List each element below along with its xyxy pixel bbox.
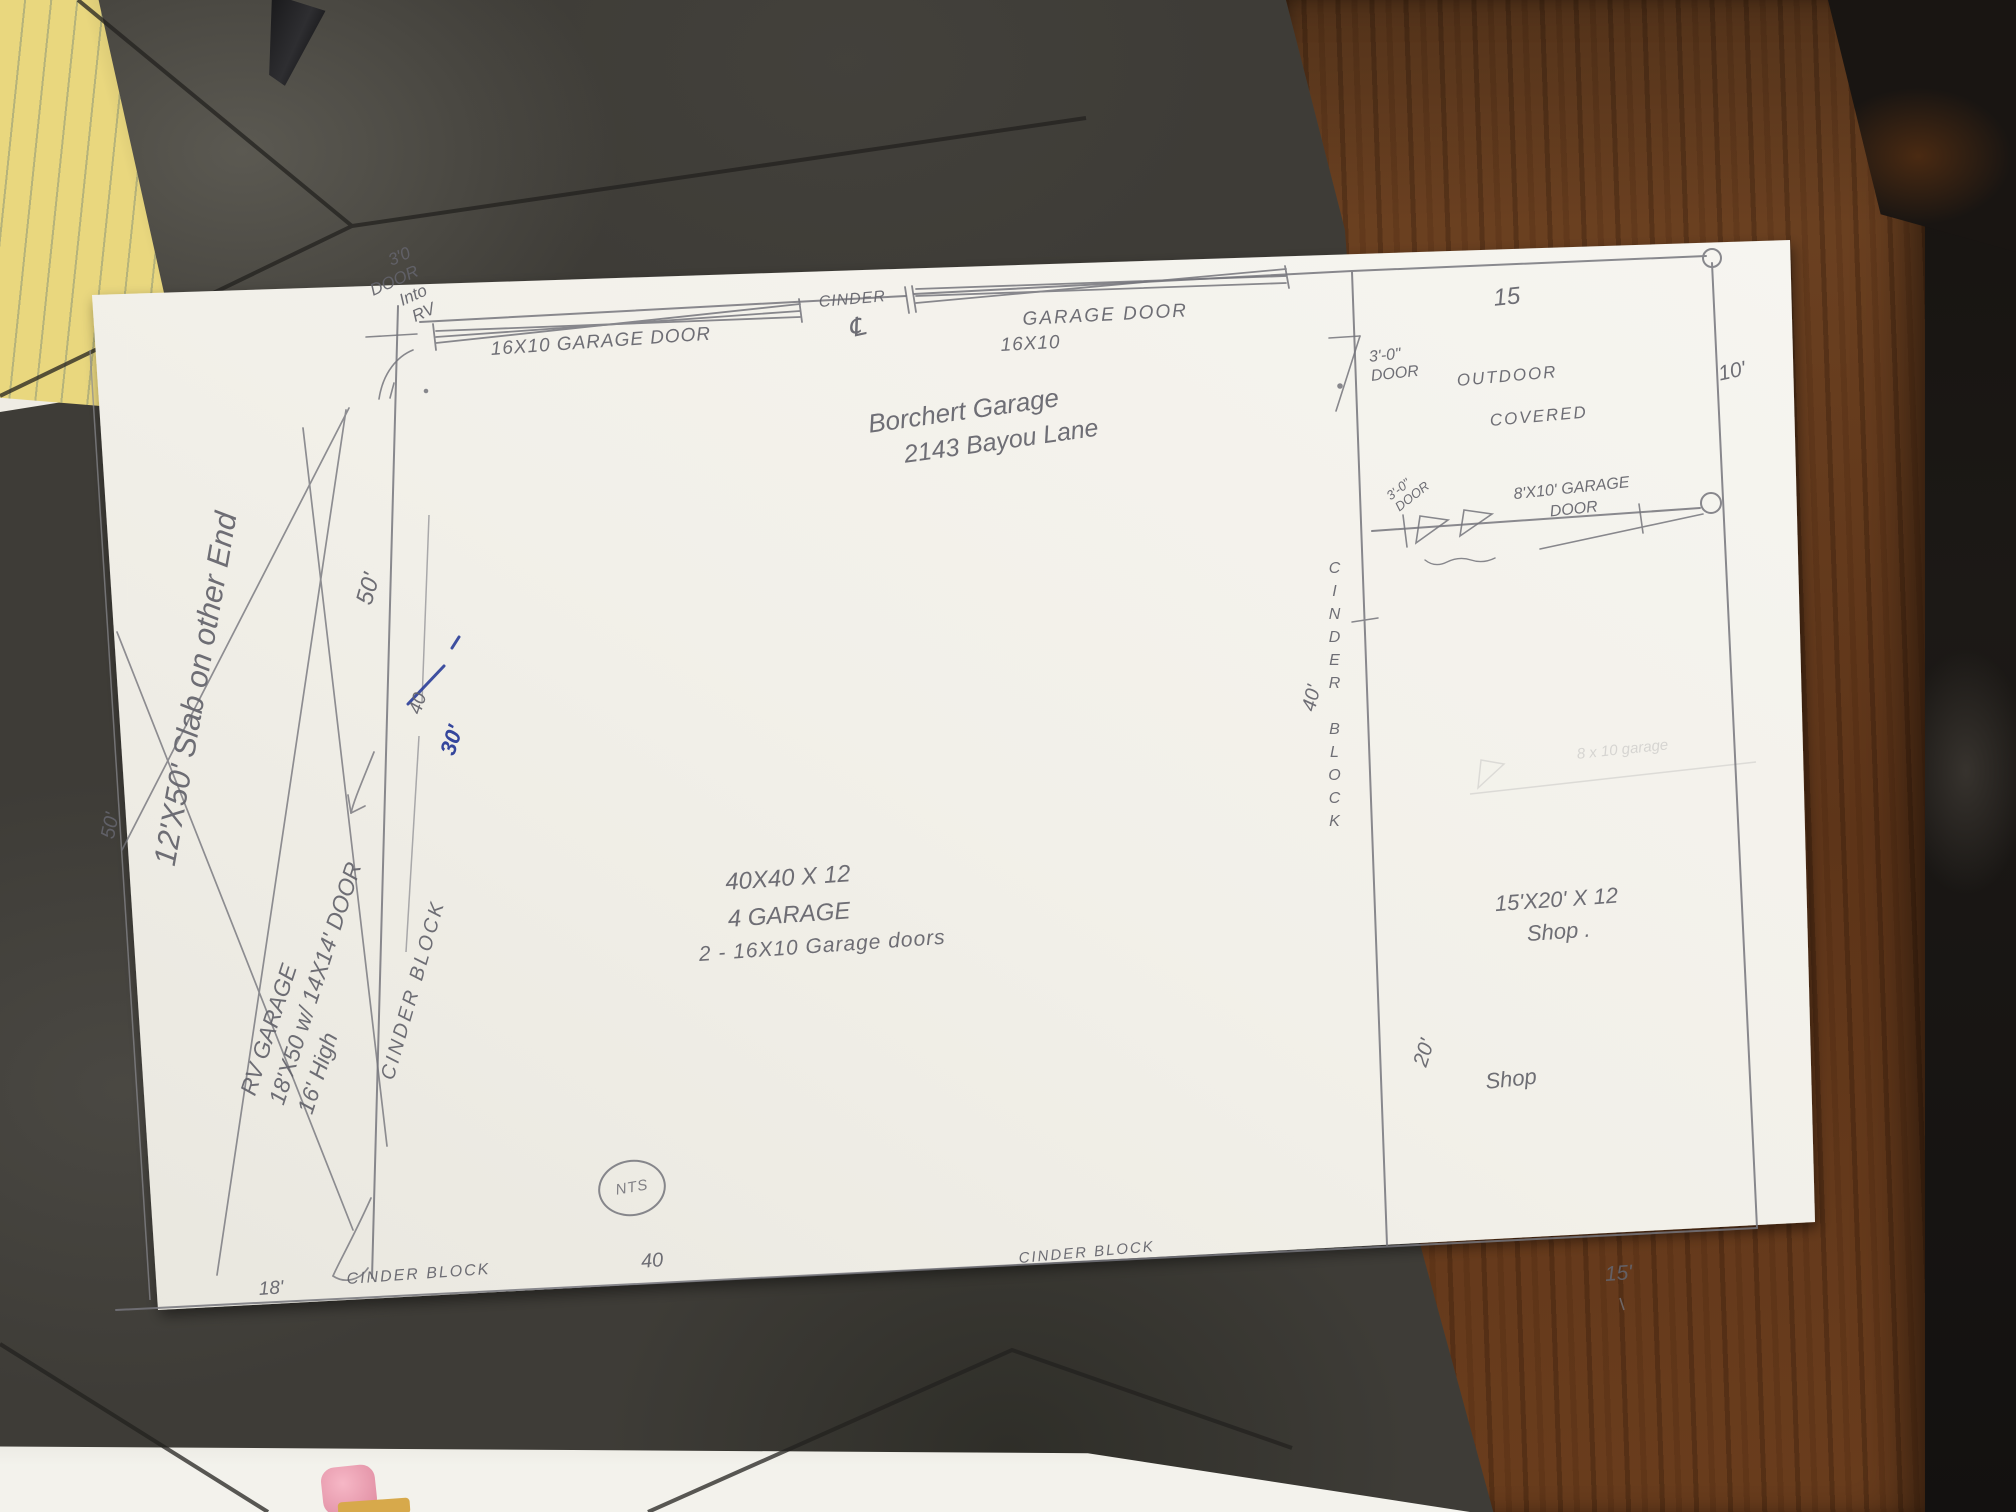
spec-main-garage: 40X40 X 12 4 GARAGE (724, 855, 854, 938)
dim-15-bottom: 15' (1604, 1260, 1633, 1288)
label-3-0-door: 3'-0" DOOR (1368, 343, 1420, 386)
photo-of-hand-drawn-garage-plan: 3'0 DOOR Into RV 16X10 GARAGE DOOR CINDE… (0, 0, 2016, 1512)
label-nts: NTS (614, 1176, 650, 1200)
label-garage-door-right-line2: 16X10 (1000, 331, 1061, 358)
label-cinder-block-right-wall: CINDER BLOCK (1324, 560, 1344, 860)
dim-18: 18' (258, 1276, 284, 1301)
dim-40-bottom: 40 (640, 1248, 664, 1275)
dim-10-right: 10' (1716, 356, 1748, 387)
spec-shop: 15'X20' X 12 Shop . (1468, 878, 1647, 954)
dim-50-left: 50' (96, 810, 126, 841)
label-shop: Shop (1484, 1063, 1538, 1096)
dim-15-top: 15 (1492, 281, 1522, 314)
